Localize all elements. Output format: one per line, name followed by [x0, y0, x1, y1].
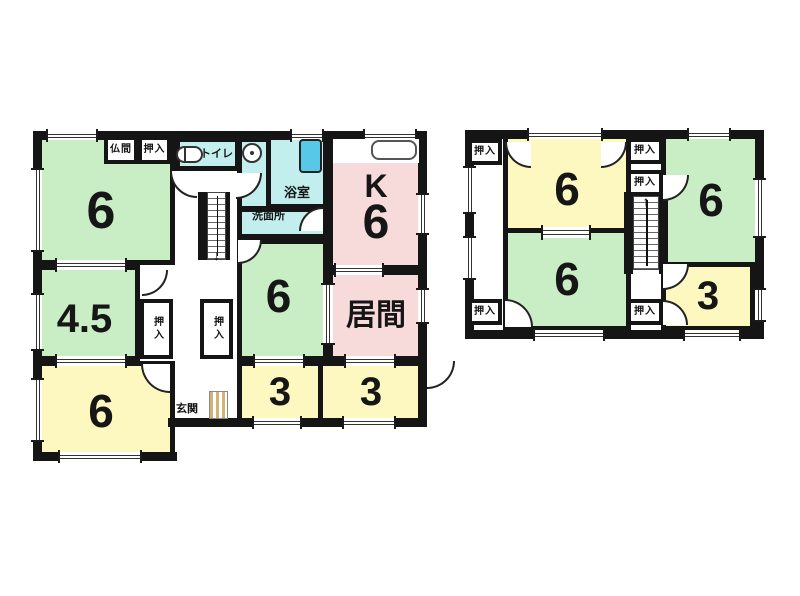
- closet-label: 押入: [474, 147, 496, 157]
- window-symbol: [33, 168, 42, 252]
- window-symbol: [527, 130, 603, 139]
- window-pane-line: [471, 166, 472, 214]
- window-end-tick: [463, 278, 476, 280]
- closet-label: 押入: [634, 146, 656, 156]
- window-end-tick: [394, 354, 396, 368]
- toilet-tank-line: [184, 148, 186, 161]
- window-end-tick: [541, 225, 543, 240]
- window-symbol: [465, 166, 474, 214]
- window-end-tick: [253, 354, 255, 368]
- window-pane-line: [424, 288, 425, 324]
- window-pane-line: [252, 421, 302, 422]
- stair-direction-arrow-down: ↓: [208, 247, 225, 263]
- window-end-tick: [290, 129, 292, 142]
- window-symbol: [253, 356, 305, 366]
- closet-label: 押入: [634, 178, 656, 188]
- window-end-tick: [31, 293, 44, 295]
- room-3-right: 3: [318, 361, 424, 423]
- window-pane-line: [36, 168, 37, 252]
- window-pane-line: [344, 362, 396, 363]
- window-pane-line: [252, 424, 302, 425]
- window-pane-line: [39, 293, 40, 351]
- window-pane-line: [46, 134, 98, 135]
- window-pane-line: [326, 283, 327, 345]
- closet-oshiire: 押入: [468, 139, 502, 165]
- closet-oshiire: 押入: [140, 299, 173, 359]
- window-pane-line: [683, 333, 741, 334]
- kitchen-label-2: 6: [363, 201, 390, 245]
- window-end-tick: [125, 354, 127, 368]
- window-end-tick: [416, 288, 429, 290]
- toilet-room-label: トイレ: [200, 149, 233, 159]
- window-pane-line: [55, 263, 127, 264]
- window-pane-line: [533, 333, 605, 334]
- window-end-tick: [533, 328, 535, 341]
- window-pane-line: [424, 193, 425, 235]
- staircase-down-icon: ↓: [207, 192, 226, 260]
- window-pane-line: [363, 137, 417, 138]
- closet-label: 仏間: [110, 145, 132, 155]
- window-pane-line: [533, 336, 605, 337]
- window-pane-line: [46, 137, 98, 138]
- window-pane-line: [541, 230, 591, 231]
- window-end-tick: [300, 416, 302, 429]
- window-end-tick: [739, 328, 741, 341]
- window-pane-line: [36, 378, 37, 442]
- tatami-6-center-label: 6: [266, 275, 292, 317]
- window-symbol: [334, 265, 384, 275]
- tatami-6-southwest-label: 6: [88, 390, 114, 432]
- basin-drain-dot: [250, 151, 254, 155]
- window-symbol: [755, 288, 764, 322]
- window-pane-line: [687, 133, 731, 134]
- bathroom-label: 浴室: [284, 187, 310, 199]
- window-pane-line: [468, 236, 469, 280]
- wall-segment: [624, 192, 633, 274]
- counter-icon: [333, 139, 419, 163]
- closet-oshiire: 押入: [627, 299, 663, 325]
- window-end-tick: [96, 129, 98, 142]
- window-end-tick: [753, 320, 766, 322]
- window-end-tick: [58, 450, 60, 463]
- window-symbol: [755, 178, 764, 238]
- wall-segment: [418, 131, 427, 427]
- tub-icon: [299, 139, 322, 173]
- window-pane-line: [290, 134, 324, 135]
- closet-oshiire: 押入: [200, 299, 233, 359]
- window-pane-line: [290, 137, 324, 138]
- window-pane-line: [253, 359, 305, 360]
- window-pane-line: [468, 166, 469, 214]
- window-end-tick: [603, 328, 605, 341]
- window-pane-line: [527, 136, 603, 137]
- room-3-2f-label: 3: [697, 278, 719, 315]
- window-pane-line: [342, 421, 396, 422]
- floorplan-canvas: 6トイレ浴室洗面所K66居間4.5633仏間押入押入押入↓玄関6663押入押入押…: [0, 0, 800, 596]
- window-end-tick: [322, 129, 324, 142]
- tatami-4-5-label: 4.5: [57, 301, 113, 338]
- window-symbol: [58, 452, 142, 461]
- staircase-up-icon: ↑: [633, 196, 659, 270]
- window-end-tick: [140, 450, 142, 463]
- window-end-tick: [416, 233, 429, 235]
- window-pane-line: [329, 283, 330, 345]
- window-end-tick: [382, 263, 384, 277]
- window-pane-line: [471, 236, 472, 280]
- window-end-tick: [683, 328, 685, 341]
- window-end-tick: [252, 416, 254, 429]
- wall-segment: [198, 192, 207, 260]
- window-symbol: [541, 227, 591, 238]
- window-pane-line: [334, 268, 384, 269]
- tatami-6-northwest-label: 6: [87, 188, 116, 236]
- window-end-tick: [46, 129, 48, 142]
- window-symbol: [418, 193, 427, 235]
- tatami-6-2f-top-label: 6: [554, 168, 580, 210]
- kitchen-label: K6: [363, 172, 390, 246]
- window-symbol: [55, 260, 127, 270]
- window-symbol: [342, 418, 396, 427]
- window-end-tick: [342, 416, 344, 429]
- window-pane-line: [334, 271, 384, 272]
- window-pane-line: [344, 359, 396, 360]
- window-end-tick: [31, 349, 44, 351]
- window-end-tick: [601, 128, 603, 141]
- window-pane-line: [58, 458, 142, 459]
- window-end-tick: [527, 128, 529, 141]
- window-pane-line: [527, 133, 603, 134]
- window-pane-line: [421, 193, 422, 235]
- window-symbol: [687, 130, 731, 139]
- living-room: 居間: [328, 270, 424, 361]
- closet-label: 押入: [212, 316, 222, 342]
- window-end-tick: [31, 378, 44, 380]
- window-end-tick: [344, 354, 346, 368]
- window-pane-line: [758, 178, 759, 238]
- window-end-tick: [321, 343, 335, 345]
- window-end-tick: [416, 322, 429, 324]
- window-end-tick: [589, 225, 591, 240]
- window-end-tick: [321, 283, 335, 285]
- step-icon: [209, 391, 228, 419]
- kitchen-sink-icon: [371, 140, 417, 160]
- room-3-left: 3: [237, 361, 323, 423]
- window-pane-line: [687, 136, 731, 137]
- window-pane-line: [421, 288, 422, 324]
- window-symbol: [533, 330, 605, 339]
- window-end-tick: [753, 236, 766, 238]
- window-end-tick: [303, 354, 305, 368]
- room-3-right-label: 3: [360, 374, 382, 411]
- window-end-tick: [55, 258, 57, 272]
- window-end-tick: [416, 193, 429, 195]
- window-symbol: [33, 378, 42, 442]
- window-pane-line: [253, 362, 305, 363]
- toilet-icon: [176, 146, 203, 163]
- window-pane-line: [55, 362, 127, 363]
- window-pane-line: [36, 293, 37, 351]
- closet-label: 押入: [144, 145, 166, 155]
- window-symbol: [323, 283, 333, 345]
- window-symbol: [683, 330, 741, 339]
- wall-segment: [659, 192, 668, 274]
- window-symbol: [418, 288, 427, 324]
- window-end-tick: [463, 166, 476, 168]
- window-pane-line: [55, 266, 127, 267]
- stair-direction-arrow-up: ↑: [634, 193, 658, 209]
- window-symbol: [46, 131, 98, 140]
- window-pane-line: [761, 288, 762, 322]
- window-pane-line: [541, 234, 591, 235]
- window-pane-line: [39, 378, 40, 442]
- tatami-6-2f-right-label: 6: [698, 179, 724, 221]
- window-end-tick: [31, 440, 44, 442]
- closet-oshiire: 押入: [138, 136, 171, 164]
- window-symbol: [344, 356, 396, 366]
- window-end-tick: [463, 212, 476, 214]
- window-symbol: [55, 356, 127, 366]
- window-symbol: [33, 293, 42, 351]
- tatami-4-5: 4.5: [33, 265, 140, 361]
- closet-label: 押入: [152, 316, 162, 342]
- window-end-tick: [729, 128, 731, 141]
- door-arc-icon: [142, 270, 168, 296]
- closet-oshiire: 押入: [468, 299, 502, 325]
- tatami-6-2f-bottom-label: 6: [554, 258, 580, 300]
- wall-segment: [226, 192, 230, 260]
- closet-label: 押入: [474, 307, 496, 317]
- window-pane-line: [683, 336, 741, 337]
- window-pane-line: [39, 168, 40, 252]
- window-end-tick: [753, 288, 766, 290]
- window-symbol: [252, 418, 302, 427]
- window-pane-line: [55, 359, 127, 360]
- window-pane-line: [758, 288, 759, 322]
- closet-oshiire: 押入: [627, 138, 663, 164]
- tatami-6-2f-right: 6: [661, 133, 761, 267]
- window-end-tick: [55, 354, 57, 368]
- window-pane-line: [342, 424, 396, 425]
- window-pane-line: [58, 455, 142, 456]
- window-end-tick: [31, 250, 44, 252]
- window-symbol: [465, 236, 474, 280]
- window-pane-line: [363, 134, 417, 135]
- window-end-tick: [125, 258, 127, 272]
- window-end-tick: [753, 178, 766, 180]
- window-end-tick: [463, 236, 476, 238]
- basin-icon: [242, 143, 262, 163]
- room-3-left-label: 3: [269, 374, 291, 411]
- window-end-tick: [394, 416, 396, 429]
- closet-label: 押入: [634, 307, 656, 317]
- text-label: 玄関: [165, 400, 209, 415]
- window-end-tick: [687, 128, 689, 141]
- closet-oshiire: 仏間: [104, 136, 138, 164]
- door-arc-icon: [427, 361, 455, 389]
- window-pane-line: [761, 178, 762, 238]
- washroom-label: 洗面所: [252, 211, 285, 221]
- living-room-label: 居間: [346, 302, 406, 330]
- window-end-tick: [31, 168, 44, 170]
- window-end-tick: [334, 263, 336, 277]
